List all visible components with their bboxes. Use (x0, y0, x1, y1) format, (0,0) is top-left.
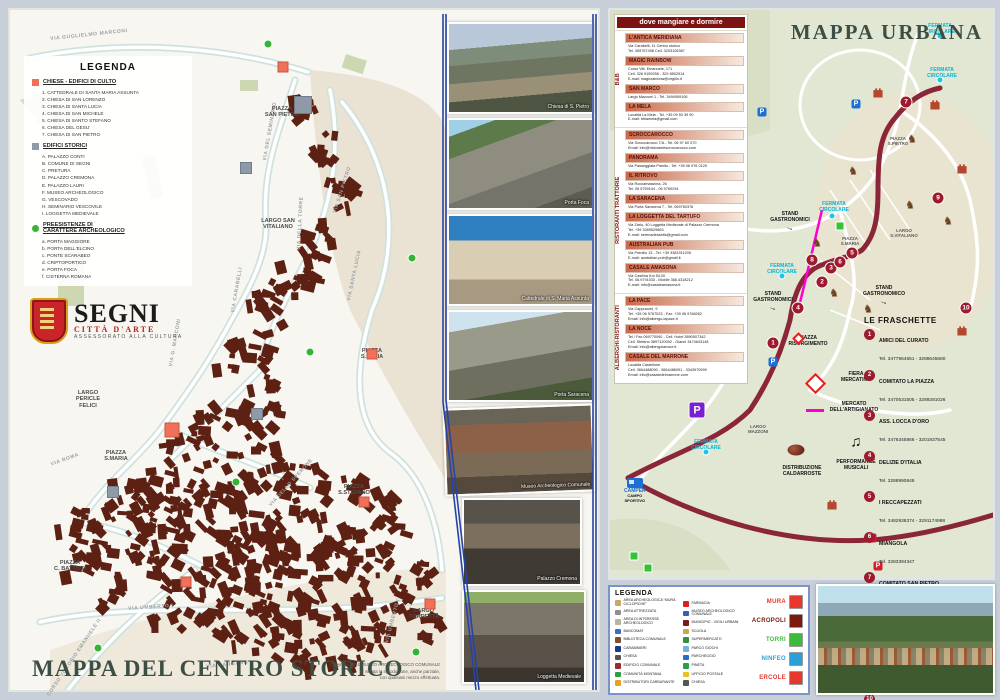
legend-row: AREA ATTREZZATA (615, 610, 678, 616)
fraschetta-map-number: 2 (816, 276, 829, 289)
fraschette-phone: Tel. 3283394347 (879, 560, 914, 565)
mappa-urbana-page: MAPPA URBANA dove mangiare e dormire B&B… (608, 8, 995, 580)
historic-marker (294, 96, 312, 114)
centro-storico-page: LEGENDA CHIESE - EDIFICI DI CULTO 1. CAT… (8, 8, 600, 692)
archeo-marker (306, 348, 315, 357)
dining-entry-details: Via Passeggiata Pianito - Tel. +39 06 97… (625, 163, 744, 169)
fraschette-phone: Tel. 3477964651 - 3288645680 (879, 357, 945, 362)
dining-entry: AUSTRALIAN PUB Via Prenilio 13 - Tel. +3… (625, 240, 744, 261)
group-label: B&B (615, 31, 625, 127)
legend-label: CARABINIERI (624, 647, 647, 651)
fraschetta-map-number: 8 (806, 254, 819, 267)
legend-row: COMUNITÀ MONTANA (615, 672, 678, 678)
legend-label: DISTRIBUTORI CARBURANTE (624, 681, 675, 685)
legend-label: MUSEO ARCHEOLOGICO COMUNALE (692, 610, 747, 618)
horse-icon: ♞ (863, 305, 873, 316)
site-label: MURA (767, 599, 786, 605)
dining-entry-details: Via Porta Saracena 7 - Tel. 069760376 (625, 204, 744, 210)
horse-icon: ♞ (829, 289, 839, 300)
dining-entry-name: LA LOGGETTA DEL TARTUFO (625, 212, 744, 222)
group-label: ALBERGHI-RISTORANTI (615, 294, 625, 382)
dining-entry-name: CASALE AMASONA (625, 263, 744, 273)
dining-entry: LA LOGGETTA DEL TARTUFO Via Zarlo, 40 Lo… (625, 212, 744, 238)
legend-item: 3. CHIESA DI SANTA LUCIA (42, 103, 184, 110)
legend-item: f. CISTERNA ROMANA (42, 273, 184, 280)
plaza-label: PIAZZA S.STEFANO (338, 484, 370, 497)
fraschette-item: 3 ASS. LOCCA D'ORO Tel. 3476345866 - 320… (864, 410, 994, 446)
music-note-icon: ♫ (850, 435, 861, 450)
map-annotation: DISTRIBUZIONE CALDARROSTE (783, 466, 822, 478)
legend-row: EDIFICIO COMUNALE (615, 663, 678, 669)
fraschette-number-badge: 6 (864, 532, 875, 543)
legend-label: PINETA (692, 664, 705, 668)
legend-icon (683, 680, 689, 686)
legend-row: MUNICIPIO - VIGILI URBANI (683, 620, 746, 626)
legend-item: e. PORTA FOCA (42, 266, 184, 273)
legend-title: LEGENDA (32, 62, 184, 73)
legend-row: CHIESA (683, 680, 746, 686)
legend-item: G. VESCOVADO (42, 196, 184, 203)
bus-stop-dot-icon (829, 213, 836, 220)
photo-caption: Museo Archeologico Comunale (521, 482, 590, 490)
legend-item: A. PALAZZO CONTI (42, 153, 184, 160)
dining-entry: CASALE DEL MARRONE Località Castellone C… (625, 352, 744, 378)
archeo-marker (412, 648, 421, 657)
green-site-icon (630, 552, 639, 561)
legend-label: EDIFICIO COMUNALE (624, 664, 661, 668)
horse-icon: ♞ (905, 201, 915, 212)
dining-entry-name: L'ANTICA MERIDIANA (625, 33, 744, 43)
dining-entry-details: Località La Mela - Tel. +39 09 53 39 90 … (625, 112, 744, 123)
legend-label: UFFICIO POSTALE (692, 673, 724, 677)
historic-list: A. PALAZZO CONTIB. COMUNE DI SEGNIC. PRE… (42, 153, 184, 216)
dining-entry: IL RITROVO Via Roccamassima, 26 Tel. 06 … (625, 171, 744, 192)
fraschetta-map-number: 4 (792, 302, 805, 315)
fraschetta-map-number: 6 (834, 256, 847, 269)
horse-icon: ♞ (812, 239, 822, 250)
archeo-marker (408, 254, 417, 263)
legend-icon (615, 672, 621, 678)
site-row: ACROPOLI (751, 614, 803, 628)
legend-item: F. MUSEO ARCHEOLOGICO (42, 189, 184, 196)
legend-label: COMUNITÀ MONTANA (624, 673, 662, 677)
legend-icon (615, 680, 621, 686)
legend-icon (615, 646, 621, 652)
archeo-marker (232, 478, 241, 487)
copyright-note: Copyright 2014 MUSEO ARCHEOLOGICO COMUNA… (328, 662, 440, 682)
photo-palazzo-cremona: Palazzo Cremona (462, 498, 582, 586)
legend-icon (615, 629, 621, 635)
panorama-photo (816, 584, 995, 695)
fermata-circolare-label: FERMATA CIRCOLARE (819, 202, 849, 214)
dining-entry: L'ANTICA MERIDIANA Via Carabelli, 11 Cen… (625, 33, 744, 54)
legend-row: CHIESA (615, 655, 678, 661)
photo-caption: Palazzo Cremona (537, 576, 577, 582)
parking-icon: P (758, 108, 767, 117)
legend-label: CHIESA (624, 655, 637, 659)
horse-icon: ♞ (848, 167, 858, 178)
legend-icon (683, 601, 689, 607)
archeo-marker (264, 40, 273, 49)
historic-marker (251, 408, 263, 420)
mura-tower-icon (827, 499, 838, 510)
bus-stop-dot-icon (703, 449, 710, 456)
photo-caption: Loggetta Medievale (537, 674, 581, 680)
dining-group-alberghi: ALBERGHI-RISTORANTI LA PACE Via Cappucci… (615, 293, 747, 382)
site-icon (789, 652, 803, 666)
legend-label: CHIESA (692, 681, 705, 685)
mercato-line-icon (806, 409, 824, 412)
site-icon (789, 633, 803, 647)
legend-item: d. CRIPTOPORTICO (42, 259, 184, 266)
legend-item: B. COMUNE DI SEGNI (42, 160, 184, 167)
centro-legend: LEGENDA CHIESE - EDIFICI DI CULTO 1. CAT… (24, 56, 192, 286)
legend-item: 6. CHIESA DEL GESU' (42, 124, 184, 131)
legend-item: 5. CHIESA DI SANTO STEFANO (42, 117, 184, 124)
legend-icon (615, 619, 621, 625)
fraschette-name: COMITATO LA PIAZZA (879, 379, 934, 385)
legend-icon (683, 629, 689, 635)
fraschette-phone: Tel. 3482938374 - 3291174988 (879, 519, 945, 524)
fraschette-name: DELIZIE D'ITALIA (879, 460, 922, 466)
archeo-marker (94, 644, 103, 653)
dining-header: dove mangiare e dormire (615, 15, 747, 30)
archeo-list: a. PORTA MAGGIOREb. PORTA DELL'ELCINOc. … (42, 238, 184, 280)
urbana-legend-title: LEGENDA (615, 590, 678, 597)
legend-row: AREA ARCHEOLOGICA "MURA CICLOPICHE" (615, 599, 678, 607)
camper-area: CAMPER CAMPO SPORTIVO (624, 478, 646, 503)
site-label: TORRI (766, 637, 786, 643)
dining-entry: LA MELA Località La Mela - Tel. +39 09 5… (625, 102, 744, 123)
legend-row: PINETA (683, 663, 746, 669)
legend-item: a. PORTA MAGGIORE (42, 238, 184, 245)
dining-entry: PANORAMA Via Passeggiata Pianito - Tel. … (625, 153, 744, 169)
legend-row: PARCO GIOCHI (683, 646, 746, 652)
fraschetta-map-number: 5 (846, 247, 859, 260)
fraschette-number-badge: 5 (864, 491, 875, 502)
fraschette-name: ASS. LOCCA D'ORO (879, 419, 929, 425)
brochure-canvas: LEGENDA CHIESE - EDIFICI DI CULTO 1. CAT… (0, 0, 1000, 700)
legend-item: C. PRETURA (42, 167, 184, 174)
legend-icon (615, 637, 621, 643)
legend-label: FARMACIA (692, 602, 710, 606)
legend-item: H. SEMINARIO VESCOVILE (42, 203, 184, 210)
dining-entry: CASALE AMASONA Via Casilina Km 54,00 Tel… (625, 263, 744, 289)
legend-label: PARCHEGGIO (692, 655, 716, 659)
bus-stop-dot-icon (779, 273, 786, 280)
campo-sportivo-label: CAMPO SPORTIVO (624, 494, 646, 503)
town-strip (818, 648, 993, 665)
legend-icon (683, 637, 689, 643)
archeo-marker-icon (32, 225, 39, 232)
site-icon (789, 671, 803, 685)
site-icon (789, 614, 803, 628)
plaza-label: LARGO TORRETTA (409, 608, 439, 621)
legend-item: 2. CHIESA DI SAN LORENZO (42, 96, 184, 103)
photo-porta-saracena: Porta Saracena (447, 310, 594, 402)
site-label: ACROPOLI (752, 618, 786, 624)
legend-row: CARABINIERI (615, 646, 678, 652)
church-marker (425, 599, 436, 610)
legend-row: PARCHEGGIO (683, 655, 746, 661)
site-row: NINFEO (751, 652, 803, 666)
legend-row: BANCOMAT (615, 629, 678, 635)
caldarroste-icon (788, 445, 805, 456)
segni-logo: SEGNI CITTÀ D'ARTE ASSESSORATO ALLA CULT… (30, 298, 183, 344)
legend-label: AREA ARCHEOLOGICA "MURA CICLOPICHE" (624, 599, 679, 607)
legend-icon (683, 672, 689, 678)
legend-item: b. PORTA DELL'ELCINO (42, 245, 184, 252)
dining-entry-name: CASALE DEL MARRONE (625, 352, 744, 362)
urbana-legend-panel: LEGENDA AREA ARCHEOLOGICA "MURA CICLOPIC… (608, 585, 810, 695)
parking-icon: P (769, 358, 778, 367)
fraschette-phone: Tel. 3476345866 - 3201937545 (879, 438, 945, 443)
piazza-label: LARGO MAZZONI (748, 424, 768, 434)
fraschette-item: 6 MIANGOLA Tel. 3283394347 (864, 532, 994, 568)
dining-entry-details: Tel / Fax 069770090 - Cell. Hotel 389050… (625, 334, 744, 350)
photo-chiesa-s-pietro: Chiesa di S. Pietro (447, 22, 594, 114)
fraschette-number-badge: 3 (864, 410, 875, 421)
dining-entry-details: Località Castellone Cell. 3664488090 - 3… (625, 362, 744, 378)
legend-label: SCUOLA (692, 630, 707, 634)
church-list: 1. CATTEDRALE DI SANTA MARIA ASSUNTA2. C… (42, 89, 184, 138)
fraschetta-map-number: 10 (960, 302, 973, 315)
legend-icon (683, 663, 689, 669)
piazza-label: PIAZZA S.PIETRO (888, 136, 909, 146)
historic-marker (107, 486, 119, 498)
legend-row: DISTRIBUTORI CARBURANTE (615, 680, 678, 686)
mura-tower-icon (957, 163, 968, 174)
legend-icon (683, 611, 689, 617)
church-marker (359, 497, 370, 508)
legend-item: E. PALAZZO LAURI (42, 182, 184, 189)
legend-row: UFFICIO POSTALE (683, 672, 746, 678)
segni-crest-icon (30, 298, 68, 344)
legend-label: PARCO GIOCHI (692, 647, 718, 651)
church-marker (367, 349, 378, 360)
site-icon (789, 595, 803, 609)
legend-row: FARMACIA (683, 601, 746, 607)
fraschetta-map-number: 1 (767, 337, 780, 350)
dining-entry-name: IL RITROVO (625, 171, 744, 181)
photo-caption: Porta Foca (565, 200, 589, 206)
legend-icon (615, 663, 621, 669)
legend-heading: EDIFICI STORICI (43, 143, 87, 150)
legend-icon (683, 620, 689, 626)
group-label: RISTORANTI TRATTORIE (615, 128, 625, 293)
legend-icon (615, 600, 621, 606)
plaza-label: LARGO PERICLE FELICI (76, 390, 100, 409)
fraschette-phone: Tel. 3470531505 - 3289281026 (879, 398, 945, 403)
dining-entry: MAGIC RAINBOW Corso Vitt. Emanuele, 171 … (625, 56, 744, 82)
legend-label: AREA DI INTERESSE ARCHEOLOGICO (624, 618, 679, 626)
fraschette-title: LE FRASCHETTE (864, 316, 994, 325)
dining-entry-details: Largo Mazzoni 1 - Tel. 3494959106 (625, 94, 744, 100)
legend-label: BIBLIOTECA COMUNALE (624, 638, 666, 642)
dining-entry-details: Via Scroccarocco 7/A - Tel. 06 97 60 070… (625, 140, 744, 151)
fraschette-phone: Tel. 3288990849 (879, 479, 914, 484)
legend-label: SUPERMERCATO (692, 638, 722, 642)
photo-loggetta: Loggetta Medievale (462, 590, 586, 684)
site-label: ERCOLE (759, 675, 786, 681)
plaza-label: PIAZZA S.MARIA (104, 450, 128, 463)
fraschette-number-badge: 7 (864, 572, 875, 583)
piazza-label: PIAZZA S.MARIA (841, 236, 860, 246)
dining-entry-name: LA SARACENA (625, 194, 744, 204)
fraschette-item: 5 I RECCAPEZZATI Tel. 3482938374 - 32911… (864, 491, 994, 527)
legend-label: AREA ATTREZZATA (624, 610, 657, 614)
parking-icon-large: P (689, 402, 706, 419)
parking-icon: P (852, 100, 861, 109)
dining-entry-name: MAGIC RAINBOW (625, 56, 744, 66)
plaza-label: PIAZZA C. BATTISTI (54, 560, 86, 573)
legend-row: SUPERMERCATO (683, 637, 746, 643)
church-marker (278, 62, 289, 73)
photo-porta-foca: Porta Foca (447, 118, 594, 210)
fraschetta-map-number: 7 (900, 96, 913, 109)
segni-title: SEGNI (74, 302, 183, 325)
site-row: ERCOLE (751, 671, 803, 685)
legend-row: SCUOLA (683, 629, 746, 635)
piazza-label: LARGO S.VITALIANO (890, 228, 917, 238)
dining-entry-name: LA NOCE (625, 324, 744, 334)
legend-item: 1. CATTEDRALE DI SANTA MARIA ASSUNTA (42, 89, 184, 96)
fraschette-number-badge: 4 (864, 451, 875, 462)
site-label: NINFEO (762, 656, 786, 662)
dining-entry-details: Via Roccamassima, 26 Tel. 06 5769144 - 0… (625, 181, 744, 192)
stand-gastronomici-label: STAND GASTRONOMICI → (753, 286, 792, 318)
photo-caption: Cattedrale di S. Maria Assunta (521, 296, 589, 302)
dining-entry-name: AUSTRALIAN PUB (625, 240, 744, 250)
mura-tower-icon (873, 87, 884, 98)
dining-entry-details: Via Prenilio 13 - Tel. +39 3381911205 E-… (625, 250, 744, 261)
photo-caption: Chiesa di S. Pietro (548, 104, 589, 110)
legend-item: D. PALAZZO CREMONA (42, 174, 184, 181)
dining-entry: LA NOCE Tel / Fax 069770090 - Cell. Hote… (625, 324, 744, 350)
segni-subtitle: CITTÀ D'ARTE (74, 325, 183, 334)
camper-icon (627, 478, 643, 488)
legend-item: I. LOGGETTA MEDIEVALE (42, 210, 184, 217)
urbana-title: MAPPA URBANA (791, 20, 983, 45)
site-row: TORRI (751, 633, 803, 647)
legend-label: BANCOMAT (624, 630, 644, 634)
dining-entry: LA SARACENA Via Porta Saracena 7 - Tel. … (625, 194, 744, 210)
legend-item: 4. CHIESA DI SAN MICHELE (42, 110, 184, 117)
fraschette-number-badge: 1 (864, 329, 875, 340)
green-site-icon (836, 222, 845, 231)
dining-group-bb: B&B L'ANTICA MERIDIANA Via Carabelli, 11… (615, 30, 747, 127)
historic-marker-icon (32, 143, 39, 150)
legend-heading: CHIESE - EDIFICI DI CULTO (43, 79, 116, 86)
legend-icon (683, 646, 689, 652)
legend-icon (615, 610, 621, 616)
dining-entry-name: SAN MARCO (625, 84, 744, 94)
legend-heading: PREESISTENZE DI CARATTERE ARCHEOLOGICO (43, 222, 125, 235)
legend-row: BIBLIOTECA COMUNALE (615, 637, 678, 643)
photo-caption: Porta Saracena (554, 392, 589, 398)
horse-icon: ♞ (943, 217, 953, 228)
bus-stop-dot-icon (937, 77, 944, 84)
horse-icon: ♞ (907, 135, 917, 146)
fraschette-number-badge: 2 (864, 370, 875, 381)
dining-entry-details: Via Casilina Km 54,00 Tel. 06.9791033 - … (625, 273, 744, 289)
fraschette-item: 2 COMITATO LA PIAZZA Tel. 3470531505 - 3… (864, 370, 994, 406)
legend-item: c. PONTE SCARABEO (42, 252, 184, 259)
fraschette-name: I RECCAPEZZATI (879, 500, 922, 506)
dining-entry-name: SCROCCAROCCO (625, 130, 744, 140)
legend-row: AREA DI INTERESSE ARCHEOLOGICO (615, 618, 678, 626)
dining-entry-name: PANORAMA (625, 153, 744, 163)
legend-icon (615, 655, 621, 661)
church-marker (181, 577, 192, 588)
historic-marker (240, 162, 252, 174)
dining-entry: SCROCCAROCCO Via Scroccarocco 7/A - Tel.… (625, 130, 744, 151)
green-site-icon (644, 564, 653, 573)
dining-directory: dove mangiare e dormire B&B L'ANTICA MER… (614, 14, 748, 384)
photo-museo: Museo Archeologico Comunale (443, 403, 596, 496)
dining-entry-details: Via Zarlo, 40 Loggetta Medievale di Pala… (625, 222, 744, 238)
fraschette-name: MIANGOLA (879, 541, 907, 547)
dining-group-ristoranti: RISTORANTI TRATTORIE SCROCCAROCCO Via Sc… (615, 127, 747, 293)
photo-cattedrale: Cattedrale di S. Maria Assunta (447, 214, 594, 306)
legend-icon (683, 655, 689, 661)
dining-entry-details: Via Cappuccini, 9 Tel. +39 06 9767023 - … (625, 306, 744, 322)
dining-entry-details: Corso Vitt. Emanuele, 171 Cell. 326 9159… (625, 66, 744, 82)
church-marker-icon (32, 79, 39, 86)
legend-item: 7. CHIESA DI SAN PIETRO (42, 131, 184, 138)
church-marker (165, 423, 180, 438)
plaza-label: LARGO SAN VITALIANO (261, 218, 295, 231)
dining-entry-details: Via Carabelli, 11 Centro storico Tel. 06… (625, 43, 744, 54)
fraschette-item: 1 AMICI DEL CURATO Tel. 3477964651 - 328… (864, 329, 994, 365)
mura-tower-icon (930, 99, 941, 110)
fraschette-item: 4 DELIZIE D'ITALIA Tel. 3288990849 (864, 451, 994, 487)
dining-entry-name: LA MELA (625, 102, 744, 112)
dining-entry: LA PACE Via Cappuccini, 9 Tel. +39 06 97… (625, 296, 744, 322)
segni-dept: ASSESSORATO ALLA CULTURA (74, 334, 183, 340)
fraschetta-map-number: 9 (932, 192, 945, 205)
fraschette-name: AMICI DEL CURATO (879, 338, 929, 344)
dining-entry-name: LA PACE (625, 296, 744, 306)
legend-row: MUSEO ARCHEOLOGICO COMUNALE (683, 610, 746, 618)
legend-label: MUNICIPIO - VIGILI URBANI (692, 621, 739, 625)
stand-gastronomici-label: STAND GASTRONOMICI → (770, 206, 809, 238)
dining-entry: SAN MARCO Largo Mazzoni 1 - Tel. 3494959… (625, 84, 744, 100)
site-row: MURA (751, 595, 803, 609)
